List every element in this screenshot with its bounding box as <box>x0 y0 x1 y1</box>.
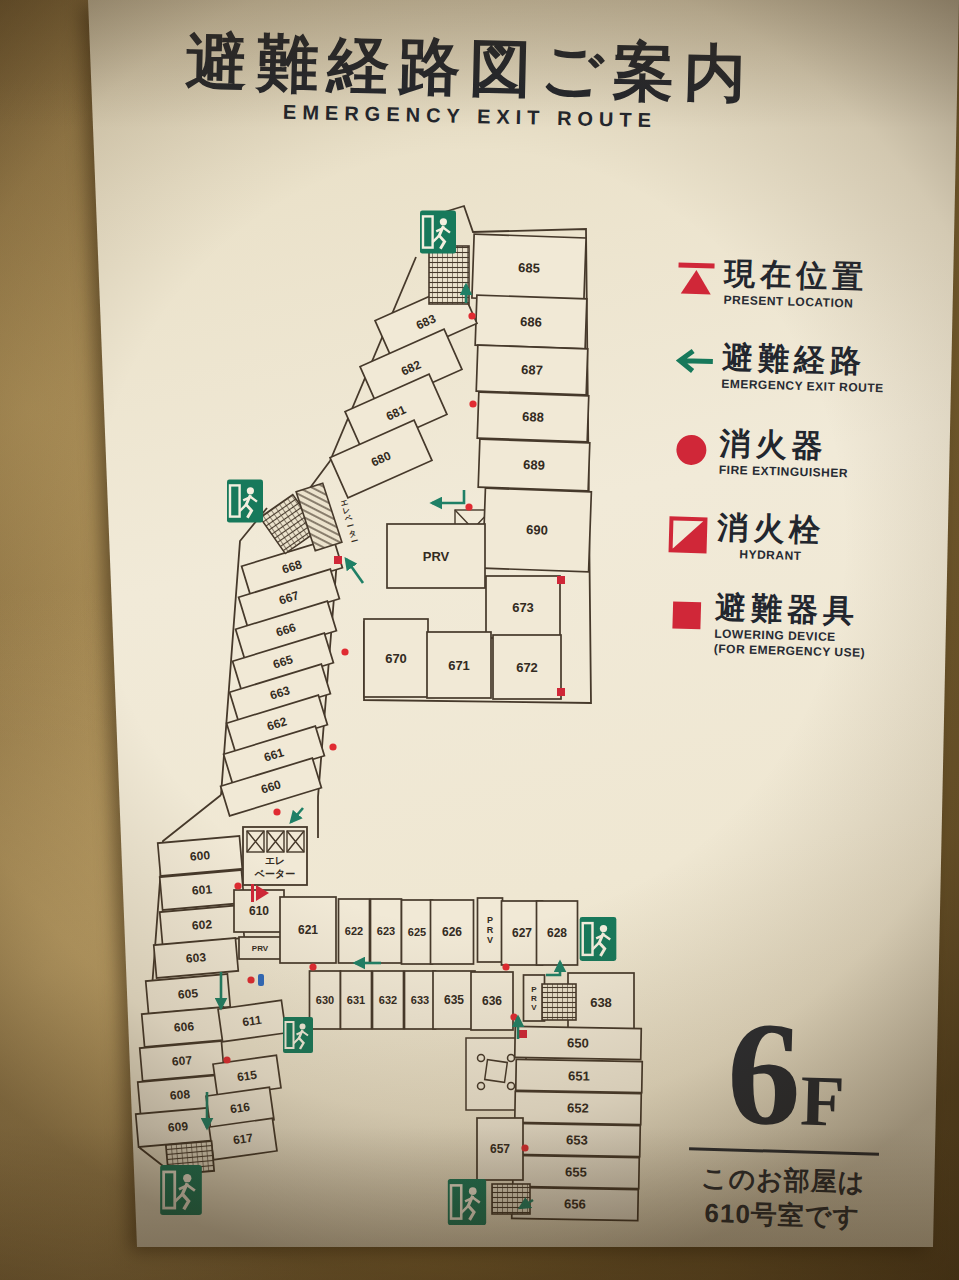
room-prv: PRV <box>387 524 485 588</box>
room-label: 670 <box>385 651 407 666</box>
legend-item-hydrant: 消火栓 HYDRANT <box>660 508 825 563</box>
room-label: 638 <box>590 995 612 1010</box>
lowering-device-mark <box>519 1030 527 1038</box>
room-672: 672 <box>493 635 561 699</box>
room-note-line1: このお部屋は <box>686 1160 881 1200</box>
room-label: PRV <box>423 549 450 564</box>
lowering-device-mark <box>557 688 565 696</box>
room-label: 609 <box>167 1119 188 1135</box>
hose-connection-mark <box>258 974 264 986</box>
room-628: 628 <box>537 901 578 965</box>
room-label: 653 <box>566 1132 588 1147</box>
legend-jp: 現在位置 <box>724 256 869 296</box>
room-label: 632 <box>379 994 397 1006</box>
emergency-exit-icon <box>448 1179 486 1225</box>
room-label: 623 <box>377 925 395 937</box>
room-625: 625 <box>402 900 433 964</box>
room-651: 651 <box>516 1059 643 1092</box>
photo-of-emergency-exit-sign: { "title": { "jp": "避難経路図ご案内", "en": "EM… <box>0 0 959 1280</box>
room-688: 688 <box>477 392 589 442</box>
room-label: 685 <box>518 260 540 276</box>
fire-extinguisher-dot <box>465 503 472 510</box>
room-label: 600 <box>189 848 210 864</box>
stairs <box>542 984 576 1020</box>
fire-extinguisher-icon <box>663 424 720 468</box>
legend-text: 避難経路 EMERGENCY EXIT ROUTE <box>721 340 885 395</box>
room-label: 687 <box>521 362 543 378</box>
fire-extinguisher-dot <box>510 1013 517 1020</box>
room-label: PRV <box>531 985 537 1012</box>
room-label: 616 <box>229 1100 251 1117</box>
room-label: 602 <box>191 917 212 933</box>
fire-extinguisher-dot <box>521 1144 528 1151</box>
room-632: 632 <box>373 971 404 1029</box>
room-673: 673 <box>486 576 560 638</box>
room-label: 606 <box>173 1019 194 1035</box>
room-label: 655 <box>565 1164 587 1179</box>
emergency-exit-icon <box>580 917 617 961</box>
room-603: 603 <box>154 938 239 978</box>
room-636: 636 <box>471 972 513 1030</box>
legend-jp: 消火栓 <box>717 510 826 549</box>
room-label: 657 <box>490 1142 510 1156</box>
floor-number-digit: 6 <box>725 998 803 1148</box>
fire-extinguisher-dot <box>223 1056 230 1063</box>
exit-route-arrow <box>346 559 363 583</box>
fire-extinguisher-dot <box>468 312 475 319</box>
fire-extinguisher-dot <box>329 743 336 750</box>
room-label: 633 <box>411 994 429 1006</box>
room-label: 603 <box>185 950 206 966</box>
stairs <box>429 246 469 304</box>
room-label: 621 <box>298 923 318 937</box>
floor-indicator: 6F このお部屋は 610号室です <box>685 997 885 1236</box>
room-626: 626 <box>431 900 474 964</box>
room-label: 611 <box>241 1013 262 1030</box>
emergency-exit-icon <box>283 1017 313 1053</box>
room-label: 689 <box>523 457 545 473</box>
room-label: 631 <box>347 994 365 1006</box>
room-622: 622 <box>339 899 370 963</box>
lowering-device-mark <box>557 576 565 584</box>
legend-text: 現在位置 PRESENT LOCATION <box>723 256 868 311</box>
room-689: 689 <box>478 439 590 491</box>
lowering-device-mark <box>334 556 342 564</box>
room-label: 608 <box>169 1087 190 1103</box>
hydrant-icon <box>660 508 717 556</box>
room-label: 688 <box>522 409 544 425</box>
fire-extinguisher-dot <box>502 963 509 970</box>
room-631: 631 <box>341 971 372 1029</box>
room-prv: PRV <box>478 898 503 962</box>
room-label: 690 <box>526 522 548 538</box>
room-label: 686 <box>520 314 542 330</box>
elevator-label-line1: エレ <box>265 855 285 866</box>
room-671: 671 <box>427 632 491 698</box>
room-label: 601 <box>191 882 212 898</box>
exit-route-arrow <box>432 490 464 503</box>
room-label: 610 <box>249 904 269 918</box>
legend-en: HYDRANT <box>716 546 824 563</box>
room-623: 623 <box>371 899 402 963</box>
elevator-label-line2: ベーター <box>254 868 295 879</box>
room-label: 627 <box>512 926 532 940</box>
room-label: 650 <box>567 1035 589 1050</box>
room-686: 686 <box>475 295 587 349</box>
room-label: 636 <box>482 994 502 1008</box>
room-label: 652 <box>567 1100 589 1115</box>
room-label: 617 <box>232 1131 254 1148</box>
legend-jp: 避難器具 <box>715 590 867 630</box>
room-630: 630 <box>310 971 341 1029</box>
room-label: 673 <box>512 600 534 615</box>
room-label: 672 <box>516 660 538 675</box>
legend-text: 消火器 FIRE EXTINGUISHER <box>719 426 850 480</box>
elevator-block: エレ ベーター <box>243 827 307 885</box>
room-653: 653 <box>514 1123 641 1156</box>
room-note-line2: 610号室です <box>685 1195 880 1235</box>
fire-extinguisher-dot <box>341 648 348 655</box>
room-621: 621 <box>280 897 336 963</box>
room-690: 690 <box>483 488 592 572</box>
room-687: 687 <box>476 345 588 395</box>
legend-text: 消火栓 HYDRANT <box>716 510 825 564</box>
room-657: 657 <box>477 1118 523 1180</box>
room-label: 607 <box>171 1053 192 1069</box>
floor-number: 6F <box>687 997 885 1150</box>
room-label: 630 <box>316 994 334 1006</box>
room-label: 671 <box>448 658 470 673</box>
room-670: 670 <box>364 619 428 697</box>
legend-item-present-location: 現在位置 PRESENT LOCATION <box>667 254 868 310</box>
room-label: 628 <box>547 926 567 940</box>
fire-extinguisher-dot <box>469 400 476 407</box>
room-601: 601 <box>160 870 245 910</box>
present-location-icon <box>668 254 725 298</box>
fire-extinguisher-dot <box>309 963 316 970</box>
fire-extinguisher-dot <box>234 882 241 889</box>
emergency-exit-icon <box>420 210 456 253</box>
legend-item-fire-extinguisher: 消火器 FIRE EXTINGUISHER <box>663 424 850 480</box>
room-652: 652 <box>515 1091 642 1124</box>
room-label: 605 <box>177 986 198 1002</box>
room-label: 656 <box>564 1196 586 1211</box>
lowering-device-icon <box>658 588 715 634</box>
room-655: 655 <box>513 1155 640 1188</box>
room-label: 625 <box>408 926 426 938</box>
room-label: PRV <box>252 944 269 953</box>
room-650: 650 <box>515 1026 642 1059</box>
room-label: 635 <box>444 993 464 1007</box>
legend-jp: 避難経路 <box>721 340 884 380</box>
room-label: PRV <box>487 915 494 945</box>
room-label: 622 <box>345 925 363 937</box>
room-635: 635 <box>433 971 475 1029</box>
fire-extinguisher-dot <box>273 808 280 815</box>
room-633: 633 <box>405 971 436 1029</box>
legend-jp: 消火器 <box>719 426 849 465</box>
fire-extinguisher-dot <box>247 976 254 983</box>
room-685: 685 <box>472 234 586 302</box>
legend-text: 避難器具 LOWERING DEVICE (FOR EMERGENCY USE) <box>714 590 867 660</box>
emergency-exit-icon <box>160 1165 202 1215</box>
room-prv: PRV <box>239 937 281 959</box>
floor-number-suffix: F <box>799 1064 845 1137</box>
exit-route-arrow <box>291 808 303 822</box>
room-label: 626 <box>442 925 462 939</box>
exit-route-arrow-icon <box>665 338 722 378</box>
room-600: 600 <box>158 836 243 876</box>
stairs <box>492 1184 530 1214</box>
room-638: 638 <box>568 973 634 1031</box>
room-label: 615 <box>236 1068 258 1085</box>
legend-item-lowering-device: 避難器具 LOWERING DEVICE (FOR EMERGENCY USE) <box>658 588 867 659</box>
room-label: 651 <box>568 1068 590 1083</box>
emergency-exit-icon <box>227 479 263 522</box>
legend-item-exit-route: 避難経路 EMERGENCY EXIT ROUTE <box>665 338 885 395</box>
